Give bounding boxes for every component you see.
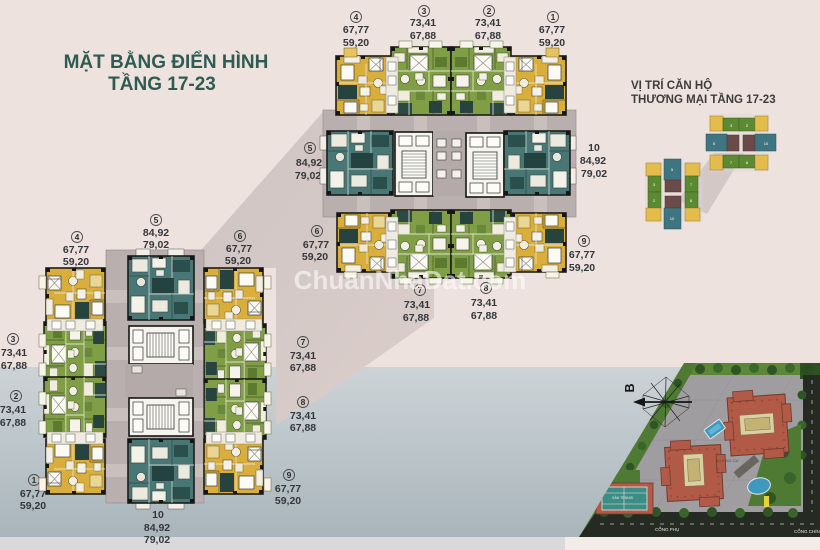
svg-text:73,41: 73,41: [0, 404, 26, 416]
svg-text:73,41: 73,41: [290, 350, 316, 362]
svg-text:67,77: 67,77: [226, 243, 252, 255]
svg-text:79,02: 79,02: [295, 170, 321, 182]
svg-text:67,88: 67,88: [403, 312, 429, 324]
svg-text:8: 8: [301, 397, 306, 407]
svg-text:CỔNG PHỤ: CỔNG PHỤ: [655, 526, 679, 532]
svg-text:73,41: 73,41: [404, 299, 430, 311]
svg-text:10: 10: [670, 216, 675, 221]
svg-text:67,77: 67,77: [63, 244, 89, 256]
svg-text:84,92: 84,92: [296, 157, 322, 169]
svg-text:73,41: 73,41: [1, 347, 27, 359]
svg-text:67,88: 67,88: [0, 417, 26, 429]
svg-text:9: 9: [287, 470, 292, 480]
svg-text:THƯƠNG MẠI TẦNG 17-23: THƯƠNG MẠI TẦNG 17-23: [631, 93, 776, 106]
svg-text:7: 7: [301, 337, 306, 347]
svg-text:67,77: 67,77: [343, 24, 369, 36]
svg-text:10: 10: [588, 142, 600, 154]
svg-text:B: B: [623, 383, 637, 392]
svg-text:2: 2: [487, 6, 492, 16]
svg-text:SÂN TENNIS: SÂN TENNIS: [612, 496, 634, 500]
svg-text:59,20: 59,20: [20, 500, 46, 512]
svg-text:59,20: 59,20: [569, 262, 595, 274]
svg-text:67,88: 67,88: [290, 362, 316, 374]
svg-text:VỊ TRÍ CĂN HỘ: VỊ TRÍ CĂN HỘ: [631, 79, 712, 92]
svg-text:79,02: 79,02: [581, 168, 607, 180]
svg-text:59,20: 59,20: [343, 37, 369, 49]
svg-text:CHUNG CƯ: CHUNG CƯ: [717, 458, 740, 463]
svg-text:2: 2: [14, 391, 19, 401]
svg-text:4: 4: [75, 232, 80, 242]
svg-text:67,77: 67,77: [539, 24, 565, 36]
svg-text:73,41: 73,41: [410, 17, 436, 29]
svg-text:79,02: 79,02: [144, 534, 170, 546]
svg-text:5: 5: [308, 143, 313, 153]
svg-text:59,20: 59,20: [302, 251, 328, 263]
svg-text:5: 5: [154, 215, 159, 225]
svg-text:67,88: 67,88: [410, 30, 436, 42]
svg-text:67,77: 67,77: [275, 483, 301, 495]
svg-text:1: 1: [32, 475, 37, 485]
svg-text:MẶT BẰNG ĐIỂN HÌNH: MẶT BẰNG ĐIỂN HÌNH: [64, 51, 269, 73]
svg-text:3: 3: [11, 334, 16, 344]
svg-text:CỔNG CHÍNH: CỔNG CHÍNH: [794, 528, 820, 534]
svg-text:59,20: 59,20: [275, 495, 301, 507]
svg-text:73,41: 73,41: [471, 297, 497, 309]
svg-text:73,41: 73,41: [475, 17, 501, 29]
svg-text:67,77: 67,77: [303, 239, 329, 251]
svg-text:6: 6: [238, 231, 243, 241]
svg-text:59,20: 59,20: [225, 255, 251, 267]
svg-text:ChuanNhaDat.com: ChuanNhaDat.com: [294, 265, 527, 295]
svg-text:67,88: 67,88: [1, 360, 27, 372]
svg-text:67,88: 67,88: [290, 422, 316, 434]
svg-text:67,88: 67,88: [471, 310, 497, 322]
svg-text:4: 4: [354, 12, 359, 22]
svg-text:59,20: 59,20: [63, 256, 89, 268]
svg-text:10: 10: [152, 509, 164, 521]
svg-text:9: 9: [582, 236, 587, 246]
svg-text:67,77: 67,77: [569, 249, 595, 261]
svg-text:59,20: 59,20: [539, 37, 565, 49]
svg-text:TẦNG 17-23: TẦNG 17-23: [108, 73, 216, 95]
svg-text:10: 10: [764, 141, 769, 146]
svg-text:6: 6: [315, 226, 320, 236]
svg-text:67,88: 67,88: [475, 30, 501, 42]
svg-text:84,92: 84,92: [580, 155, 606, 167]
svg-text:84,92: 84,92: [143, 227, 169, 239]
svg-text:73,41: 73,41: [290, 410, 316, 422]
svg-text:3: 3: [422, 6, 427, 16]
svg-text:84,92: 84,92: [144, 522, 170, 534]
svg-text:1: 1: [551, 12, 556, 22]
